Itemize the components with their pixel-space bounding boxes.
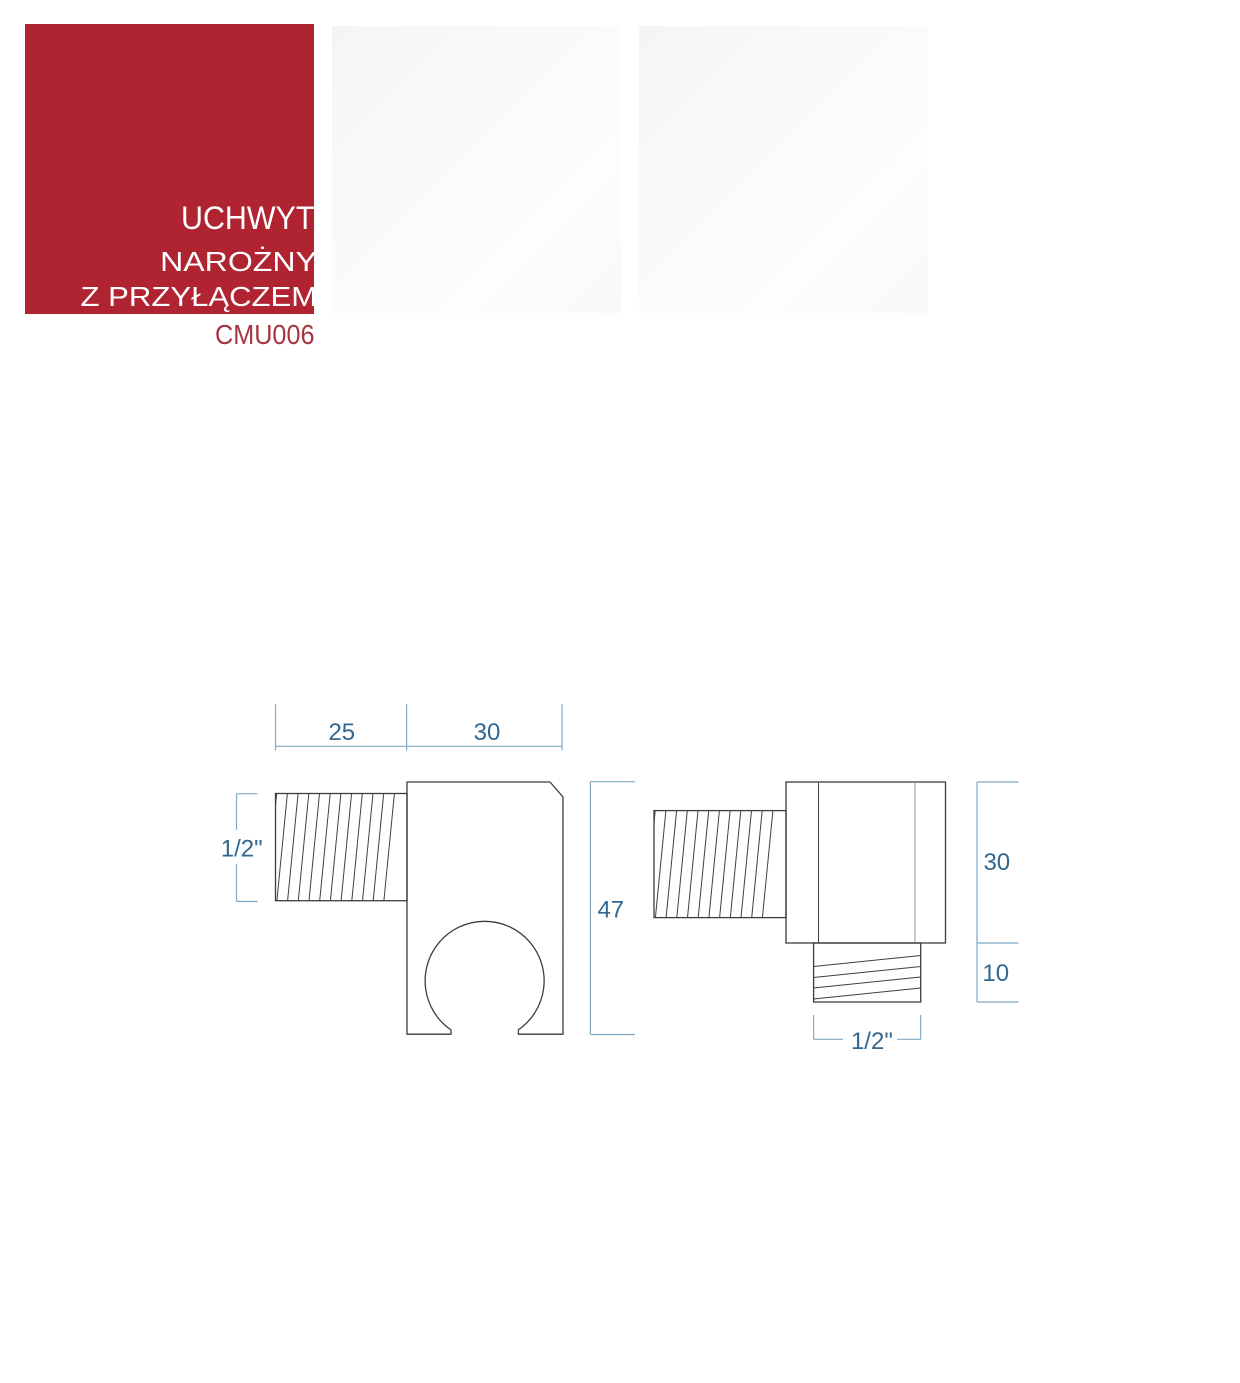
svg-text:1/2": 1/2" [221,836,263,863]
svg-text:25: 25 [328,719,355,746]
svg-text:30: 30 [474,719,501,746]
svg-text:30: 30 [983,849,1010,876]
svg-text:1/2": 1/2" [851,1028,893,1055]
svg-text:47: 47 [597,897,624,924]
svg-text:10: 10 [982,960,1009,987]
